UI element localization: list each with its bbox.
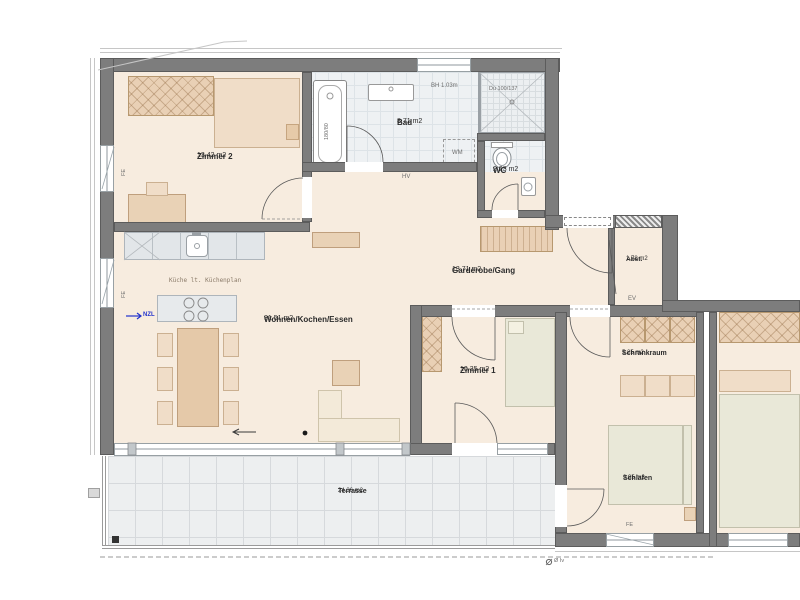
room-area: 10.35 m2 (460, 366, 489, 375)
outline-line (100, 52, 560, 53)
label-fe-window: FE (121, 291, 127, 298)
room-area: 8.71 m2 (397, 118, 422, 127)
sideboard (312, 232, 360, 248)
label-window-height: BH 1.03m (431, 83, 458, 89)
room-area: 5.25 m2 (622, 350, 644, 358)
door-opening (452, 305, 495, 317)
chair (223, 367, 239, 391)
outline-line (94, 58, 95, 455)
wardrobe (422, 315, 442, 372)
bed-pillow (286, 124, 299, 140)
label-washing-machine: WM (452, 150, 463, 156)
chair (157, 401, 173, 425)
room-area: 2.23 m2 (493, 166, 518, 175)
dresser (645, 375, 670, 397)
terrace-post (112, 536, 119, 543)
wall (100, 58, 560, 72)
door-opening (570, 305, 610, 317)
wall (709, 312, 717, 547)
dresser (670, 375, 695, 397)
label-kitchen-note: Küche lt. Küchenplan (169, 277, 241, 284)
dining-table (177, 328, 219, 427)
chair (157, 367, 173, 391)
window (417, 58, 471, 72)
terrace-railing (102, 545, 555, 549)
wall (477, 133, 545, 141)
door-opening (452, 443, 497, 455)
room-area: 13.71 m2 (452, 266, 481, 275)
wall (662, 300, 800, 312)
room-area: 13.42 m2 (197, 152, 226, 161)
label-shower-size: Du 100/137 (489, 86, 517, 92)
washbasin (368, 84, 414, 101)
terrace-glazing (114, 443, 410, 456)
wall (114, 222, 310, 232)
coffee-table (332, 360, 360, 386)
chair (223, 401, 239, 425)
coat-closet (480, 226, 553, 252)
door-opening (555, 485, 567, 527)
bed-headboard (682, 425, 684, 505)
outline-line (555, 551, 800, 552)
door-opening (492, 210, 518, 218)
label-fe-window: FE (121, 169, 127, 176)
label-supply-air: NZL (143, 312, 155, 318)
toilet-tank (491, 142, 513, 148)
room-area: 24.36 m2 (338, 488, 363, 496)
bed (719, 394, 800, 528)
bathtub-inner (318, 85, 342, 163)
window (100, 258, 114, 308)
chair (223, 333, 239, 357)
room-area: 1.78 m2 (626, 256, 648, 264)
wc-basin (521, 177, 536, 196)
terrace-railing (102, 456, 106, 545)
wall (545, 58, 559, 230)
floor-plan: Zimmer 2 13.42 m2 Bad 8.71 m2 WC 2.23 m2… (0, 0, 800, 600)
wall (608, 228, 615, 305)
bed-pillow (508, 321, 524, 334)
label-tub-size: 180/80 (324, 123, 330, 140)
wall-stub (88, 488, 100, 498)
window (728, 533, 788, 547)
entrance-door-leaf (564, 217, 611, 226)
wall (477, 141, 485, 218)
nightstand (684, 507, 696, 521)
outline-line (100, 48, 562, 49)
door-opening (302, 177, 312, 218)
label-hv: HV (402, 174, 410, 180)
hatched-wall (615, 215, 662, 228)
door-opening (345, 162, 383, 172)
outline-line (90, 58, 91, 455)
wall (100, 58, 114, 455)
wall (410, 305, 422, 455)
window (606, 533, 654, 547)
kitchen-sink (186, 235, 208, 257)
room-area: 9.95 m2 (623, 475, 645, 483)
wall (662, 215, 678, 312)
chair (146, 182, 168, 196)
wall (302, 162, 477, 172)
dresser (620, 375, 645, 397)
window (497, 443, 548, 455)
wall (696, 312, 704, 533)
label-fe-window: FE (626, 522, 633, 528)
bed (608, 425, 692, 505)
window (100, 145, 114, 192)
wardrobe (128, 76, 214, 116)
label-drain: Ø Iv (554, 558, 564, 564)
label-ev: EV (628, 296, 636, 302)
floor-shower (480, 72, 545, 133)
kitchen-island (157, 295, 237, 322)
room-area: 31.51 m2 (264, 315, 293, 324)
chair (157, 333, 173, 357)
floor-terrasse (108, 456, 555, 545)
dresser (719, 370, 791, 392)
sofa (318, 418, 400, 442)
wardrobe (719, 312, 800, 343)
shower-partition (478, 72, 480, 133)
